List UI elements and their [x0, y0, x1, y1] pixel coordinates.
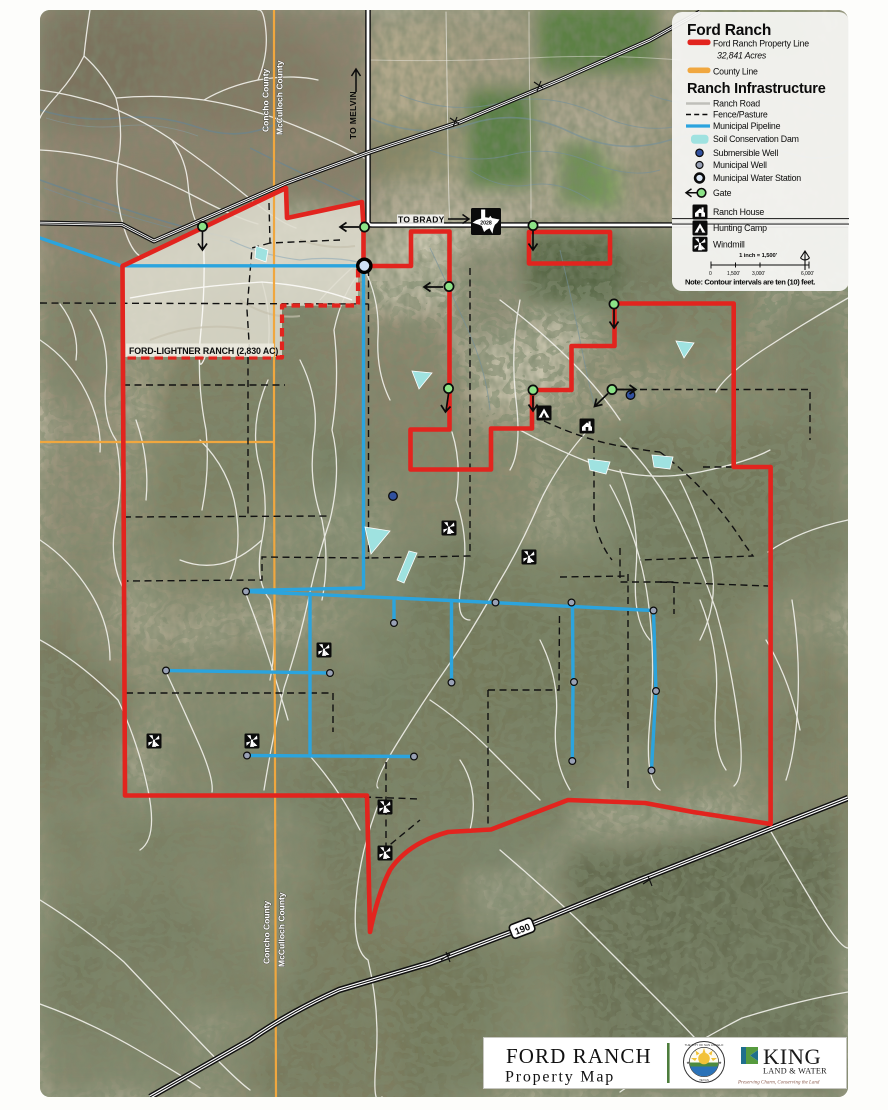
svg-text:Submersible Well: Submersible Well: [713, 148, 778, 158]
svg-text:FORD RANCH: FORD RANCH: [506, 1044, 652, 1068]
svg-text:1,500': 1,500': [727, 271, 740, 277]
svg-text:THE CITY OF SAN ANGELO: THE CITY OF SAN ANGELO: [685, 1043, 724, 1047]
svg-text:Concho County: Concho County: [261, 68, 271, 132]
svg-text:FORD-LIGHTNER RANCH (2,830 AC): FORD-LIGHTNER RANCH (2,830 AC): [129, 346, 278, 356]
svg-text:Ford Ranch: Ford Ranch: [687, 22, 771, 39]
svg-text:Windmill: Windmill: [713, 240, 745, 250]
svg-text:Gate: Gate: [713, 188, 732, 198]
svg-text:Property Map: Property Map: [505, 1069, 615, 1086]
svg-text:Hunting Camp: Hunting Camp: [713, 223, 767, 233]
svg-text:TO MELVIN: TO MELVIN: [348, 91, 358, 139]
svg-text:★: ★: [718, 1060, 722, 1065]
svg-text:McCulloch County: McCulloch County: [275, 60, 285, 135]
svg-text:Ford Ranch Property Line: Ford Ranch Property Line: [713, 39, 809, 49]
svg-text:3,000': 3,000': [752, 271, 765, 277]
svg-text:Soil Conservation Dam: Soil Conservation Dam: [713, 134, 799, 144]
svg-text:Concho County: Concho County: [262, 900, 272, 964]
svg-text:0: 0: [709, 271, 712, 277]
svg-text:Note: Contour intervals are te: Note: Contour intervals are ten (10) fee…: [685, 278, 815, 287]
svg-text:Ranch House: Ranch House: [713, 207, 764, 217]
svg-text:6,000': 6,000': [801, 271, 814, 277]
svg-text:County Line: County Line: [713, 67, 758, 77]
svg-text:TEXAS: TEXAS: [699, 1078, 709, 1082]
svg-text:Fence/Pasture: Fence/Pasture: [713, 110, 768, 120]
svg-text:Ranch Road: Ranch Road: [713, 99, 760, 109]
svg-text:TO BRADY: TO BRADY: [398, 215, 445, 225]
svg-text:Municipal Well: Municipal Well: [713, 160, 767, 170]
svg-text:1 inch = 1,500': 1 inch = 1,500': [739, 253, 777, 259]
svg-text:KING: KING: [763, 1044, 821, 1069]
svg-text:32,841 Acres: 32,841 Acres: [717, 51, 767, 61]
svg-text:McCulloch County: McCulloch County: [277, 892, 287, 967]
svg-text:Ranch Infrastructure: Ranch Infrastructure: [687, 81, 826, 97]
svg-text:★: ★: [686, 1060, 690, 1065]
svg-text:Preserving Charm, Conserving t: Preserving Charm, Conserving the Land: [737, 1081, 820, 1086]
svg-text:2028: 2028: [480, 221, 492, 227]
svg-text:Municipal Pipeline: Municipal Pipeline: [713, 121, 781, 131]
svg-text:LAND & WATER: LAND & WATER: [763, 1067, 827, 1076]
svg-text:Municipal Water Station: Municipal Water Station: [713, 173, 801, 183]
